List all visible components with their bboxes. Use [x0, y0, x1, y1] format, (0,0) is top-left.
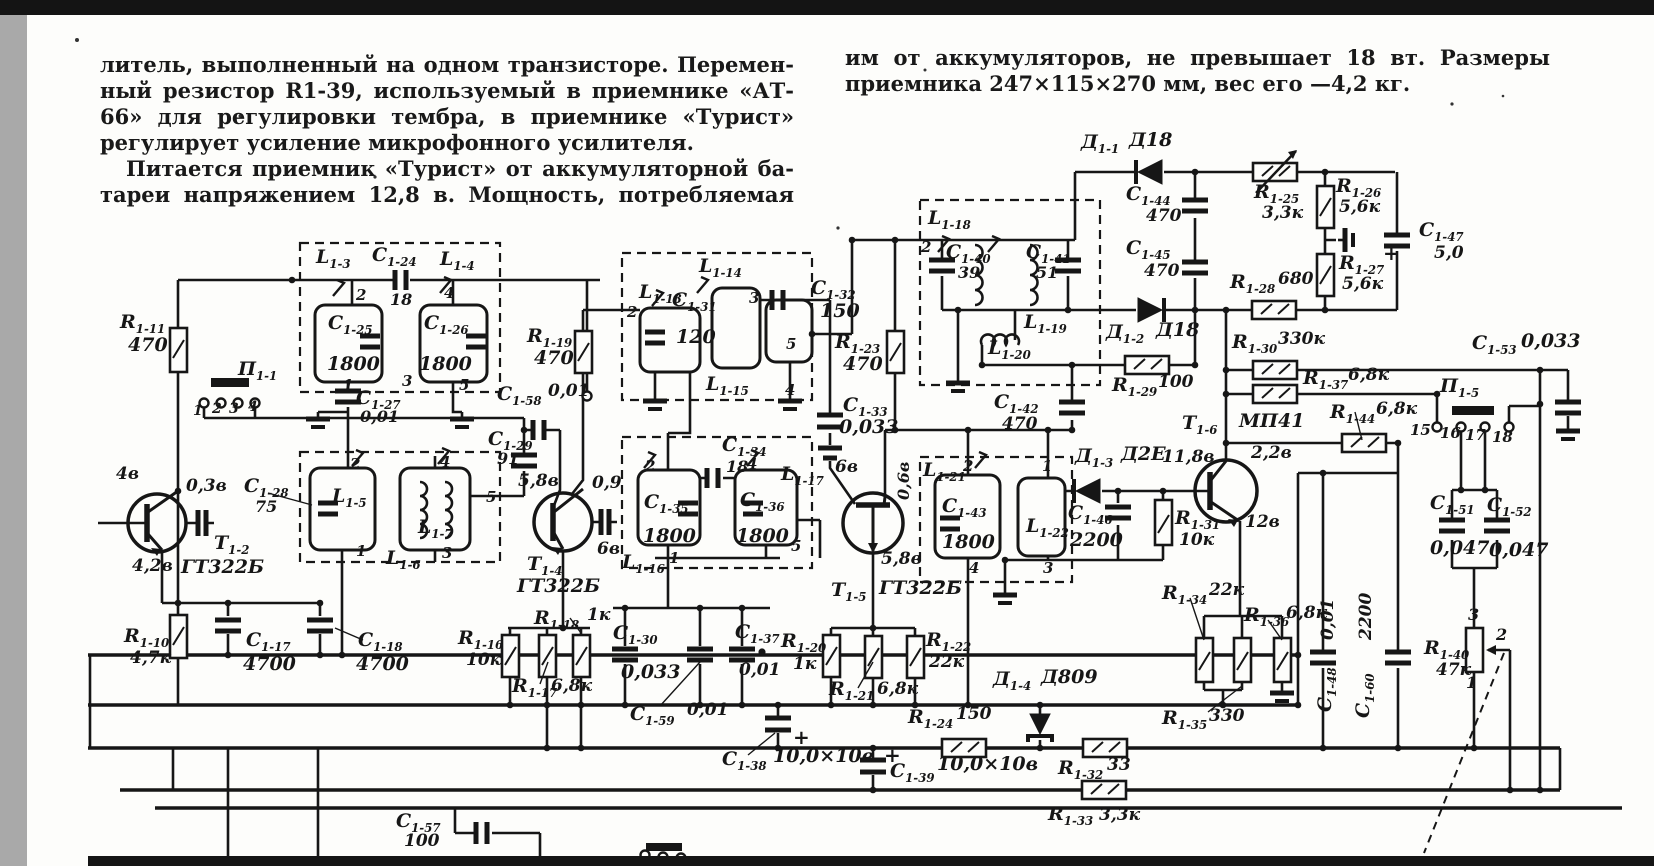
component-label: C1-52: [1487, 496, 1532, 519]
component-label: 17: [1465, 428, 1486, 443]
component-label: L1-5: [332, 487, 367, 510]
component-label: C1-45: [1126, 239, 1171, 262]
component-label: 2200: [1070, 531, 1123, 550]
component-label: 4в: [116, 466, 139, 483]
component-label: C1-17: [246, 631, 291, 654]
component-label: R1-34: [1162, 584, 1207, 607]
component-label: R1-30: [1232, 333, 1277, 356]
component-label: 1800: [736, 527, 789, 546]
component-label: П1-1: [238, 360, 277, 383]
component-label: C1-48: [1316, 667, 1339, 712]
component-label: 4: [440, 455, 450, 470]
component-label: L1-14: [699, 257, 742, 280]
component-label: 0,6в: [896, 462, 912, 500]
component-label: 16: [1440, 426, 1461, 441]
component-label: C1-44: [1126, 185, 1171, 208]
component-label: 0,047: [1430, 539, 1490, 558]
component-label: ГТ322Б: [879, 579, 962, 598]
component-label: 18: [726, 459, 748, 475]
component-label: R1-16: [458, 629, 503, 652]
component-label: 1800: [327, 355, 380, 374]
component-label: 2: [356, 288, 366, 303]
component-label: 3: [749, 291, 759, 306]
component-label: 39: [958, 265, 980, 281]
component-label: C1-51: [1430, 494, 1475, 517]
component-label: 12в: [1245, 514, 1280, 531]
component-label: Д809: [1041, 668, 1098, 687]
component-label: 100: [1158, 374, 1194, 391]
component-label: 33: [1107, 757, 1131, 774]
component-label: 3: [442, 546, 452, 561]
component-label: 1: [343, 378, 353, 393]
component-label: 22к: [929, 654, 964, 671]
component-label: 3: [229, 402, 239, 416]
component-label: C1-59: [630, 705, 675, 728]
component-label: 1800: [942, 533, 995, 552]
component-label: C1-60: [1354, 673, 1377, 718]
component-label: 0,01: [360, 409, 399, 425]
component-label: C1-24: [372, 246, 417, 269]
component-label: 3: [1468, 607, 1479, 623]
component-label: 4: [785, 383, 795, 398]
component-label: 10,0×10в: [773, 747, 874, 766]
component-label: 0,3в: [186, 478, 227, 495]
component-label: R1-37: [1303, 369, 1348, 392]
component-label: 150: [956, 706, 992, 723]
component-label: 5: [786, 337, 796, 352]
component-label: 0,01: [687, 702, 728, 719]
component-label: L1-19: [1024, 313, 1067, 336]
component-label: 3,3к: [1099, 807, 1140, 824]
component-label: Т1-6: [1182, 414, 1217, 437]
component-label: 2200: [1358, 593, 1375, 640]
component-label: R1-22: [926, 631, 971, 654]
component-label: 100: [404, 833, 440, 850]
component-label: 120: [676, 328, 716, 347]
component-label: C1-43: [942, 497, 987, 520]
component-label: 2: [627, 305, 637, 320]
component-label: R1-28: [1230, 273, 1275, 296]
component-label: Д1-4: [993, 670, 1031, 693]
component-label: +: [1383, 243, 1400, 263]
component-label: C1-42: [994, 393, 1039, 416]
component-label: 4,7к: [130, 650, 171, 667]
component-label: 4: [444, 286, 454, 301]
component-label: C1-58: [497, 385, 542, 408]
scan-edge-strip: [0, 15, 27, 866]
component-label: 4700: [356, 655, 409, 674]
component-label: C1-34: [722, 436, 767, 459]
component-label: 1: [356, 544, 366, 559]
component-label: 470: [1144, 263, 1180, 280]
component-label: 5: [791, 539, 801, 554]
component-label: 18: [390, 292, 412, 308]
component-label: R1-20: [781, 632, 826, 655]
component-label: R1-36: [1244, 606, 1289, 629]
component-label: 4700: [243, 655, 296, 674]
component-label: МП41: [1239, 412, 1304, 431]
component-label: C1-35: [644, 493, 689, 516]
component-label: 6,8к: [877, 681, 918, 698]
component-label: R1-29: [1112, 376, 1157, 399]
component-label: 6,8к: [1376, 401, 1417, 418]
component-label: 680: [1278, 271, 1314, 288]
component-label: 470: [534, 349, 574, 368]
component-label: 5,8в: [518, 473, 559, 490]
component-label: 11,8в: [1162, 449, 1215, 466]
component-label: 0,01: [1320, 599, 1337, 640]
component-label: 2: [645, 459, 655, 474]
component-label: T1-2: [214, 534, 249, 557]
component-label: 0,01: [739, 662, 780, 679]
component-label: C1-36: [740, 491, 785, 514]
component-label: Д1-1: [1081, 133, 1119, 156]
component-label: 1: [1466, 675, 1477, 691]
component-label: 6,8к: [551, 678, 592, 695]
component-label: L1-16: [622, 553, 665, 576]
component-label: 1к: [587, 607, 610, 624]
component-label: 470: [1002, 416, 1038, 433]
component-label: 0,033: [1521, 332, 1581, 351]
component-label: L1-20: [988, 339, 1031, 362]
component-label: ГТ322Б: [517, 577, 600, 596]
component-label: 22к: [1209, 582, 1244, 599]
component-label: 2: [350, 457, 360, 472]
component-label: C1-26: [424, 314, 469, 337]
component-label: 15: [1410, 423, 1431, 438]
component-label: 330: [1209, 708, 1245, 725]
component-label: 0,9: [592, 475, 622, 492]
component-label: 470: [1146, 208, 1182, 225]
component-label: Д2Е: [1121, 445, 1166, 464]
component-label: C1-25: [328, 314, 373, 337]
component-label: 10к: [466, 652, 501, 669]
component-label: 4,2в: [132, 558, 173, 575]
component-label: 3: [402, 374, 412, 389]
component-label: 10,0×10в: [937, 755, 1038, 774]
component-label: 2: [1496, 627, 1507, 643]
component-label: C1-38: [722, 750, 767, 773]
component-label: П1-5: [1440, 377, 1479, 400]
component-label: Д1-3: [1075, 447, 1113, 470]
component-label: 0,033: [839, 418, 899, 437]
component-label: L1-17: [781, 465, 824, 488]
component-label: Д1-2: [1106, 323, 1144, 346]
scanned-page: литель, выполненный на одном транзисторе…: [0, 0, 1654, 866]
component-label: C1-31: [672, 291, 717, 314]
component-label: 51: [1036, 265, 1058, 281]
component-label: Д18: [1129, 131, 1172, 150]
component-label: R1-31: [1175, 509, 1220, 532]
component-label: +: [793, 727, 810, 747]
component-label: 91: [497, 451, 519, 467]
component-label: 1: [193, 404, 203, 418]
component-label: 6в: [597, 541, 620, 558]
component-label: L1-7: [418, 518, 453, 541]
component-label: 3: [1043, 561, 1053, 576]
component-label: 18: [1492, 430, 1513, 445]
component-label: R1-32: [1058, 759, 1103, 782]
component-label: 75: [255, 499, 277, 515]
component-label: R1-44: [1330, 403, 1375, 426]
component-label: +: [884, 745, 901, 765]
component-label: L1-4: [440, 250, 475, 273]
component-label: R1-24: [908, 708, 953, 731]
component-label: 0,01: [548, 383, 589, 400]
component-label: 4: [969, 561, 979, 576]
component-label: R1-35: [1162, 709, 1207, 732]
component-label: L1-15: [706, 375, 749, 398]
component-label: 6в: [835, 459, 858, 476]
component-label: Д18: [1156, 321, 1199, 340]
schematic-labels: R1-11470П1-112344в0,3вT1-24,2вГТ322БL1-3…: [0, 0, 1654, 866]
component-label: 5,6к: [1342, 276, 1383, 293]
component-label: 5,6к: [1339, 199, 1380, 216]
component-label: R1-11: [120, 313, 165, 336]
component-label: 5,0: [1434, 245, 1464, 262]
component-label: C1-47: [1419, 221, 1464, 244]
component-label: L1-6: [386, 549, 421, 572]
component-label: C1-46: [1068, 504, 1113, 527]
component-label: R1-10: [124, 627, 169, 650]
component-label: 1: [669, 551, 679, 566]
component-label: 1800: [643, 527, 696, 546]
component-label: L1-21: [923, 461, 966, 484]
component-label: 5,8в: [881, 551, 922, 568]
component-label: 5: [459, 378, 469, 393]
component-label: R1-33: [1048, 805, 1093, 828]
component-label: 4: [248, 400, 258, 414]
component-label: 2: [963, 459, 973, 474]
component-label: ГТ322Б: [181, 558, 264, 577]
component-label: T1-5: [831, 581, 866, 604]
component-label: 330к: [1278, 331, 1325, 348]
component-label: 2: [921, 240, 931, 255]
component-label: C1-53: [1472, 334, 1517, 357]
component-label: C1-18: [358, 631, 403, 654]
component-label: 470: [843, 355, 883, 374]
component-label: 3,3к: [1262, 205, 1303, 222]
component-label: R1-21: [829, 680, 874, 703]
component-label: 470: [128, 336, 168, 355]
component-label: 150: [820, 302, 860, 321]
component-label: C1-37: [735, 623, 780, 646]
component-label: 1: [1042, 459, 1052, 474]
component-label: R1-18: [534, 609, 579, 632]
component-label: 1к: [793, 656, 816, 673]
component-label: C1-32: [811, 279, 856, 302]
component-label: L1-3: [316, 248, 351, 271]
component-label: 2,2в: [1251, 445, 1292, 462]
component-label: 5: [486, 490, 496, 505]
component-label: L1-22: [1026, 517, 1069, 540]
component-label: 4: [747, 457, 757, 472]
component-label: C1-30: [613, 624, 658, 647]
component-label: 10к: [1179, 532, 1214, 549]
component-label: 0,033: [621, 663, 681, 682]
component-label: 0,047: [1489, 541, 1549, 560]
component-label: 1800: [419, 355, 472, 374]
component-label: 6,8к: [1348, 367, 1389, 384]
component-label: L1-18: [928, 209, 971, 232]
component-label: 2: [212, 402, 222, 416]
component-label: R1-40: [1424, 639, 1469, 662]
